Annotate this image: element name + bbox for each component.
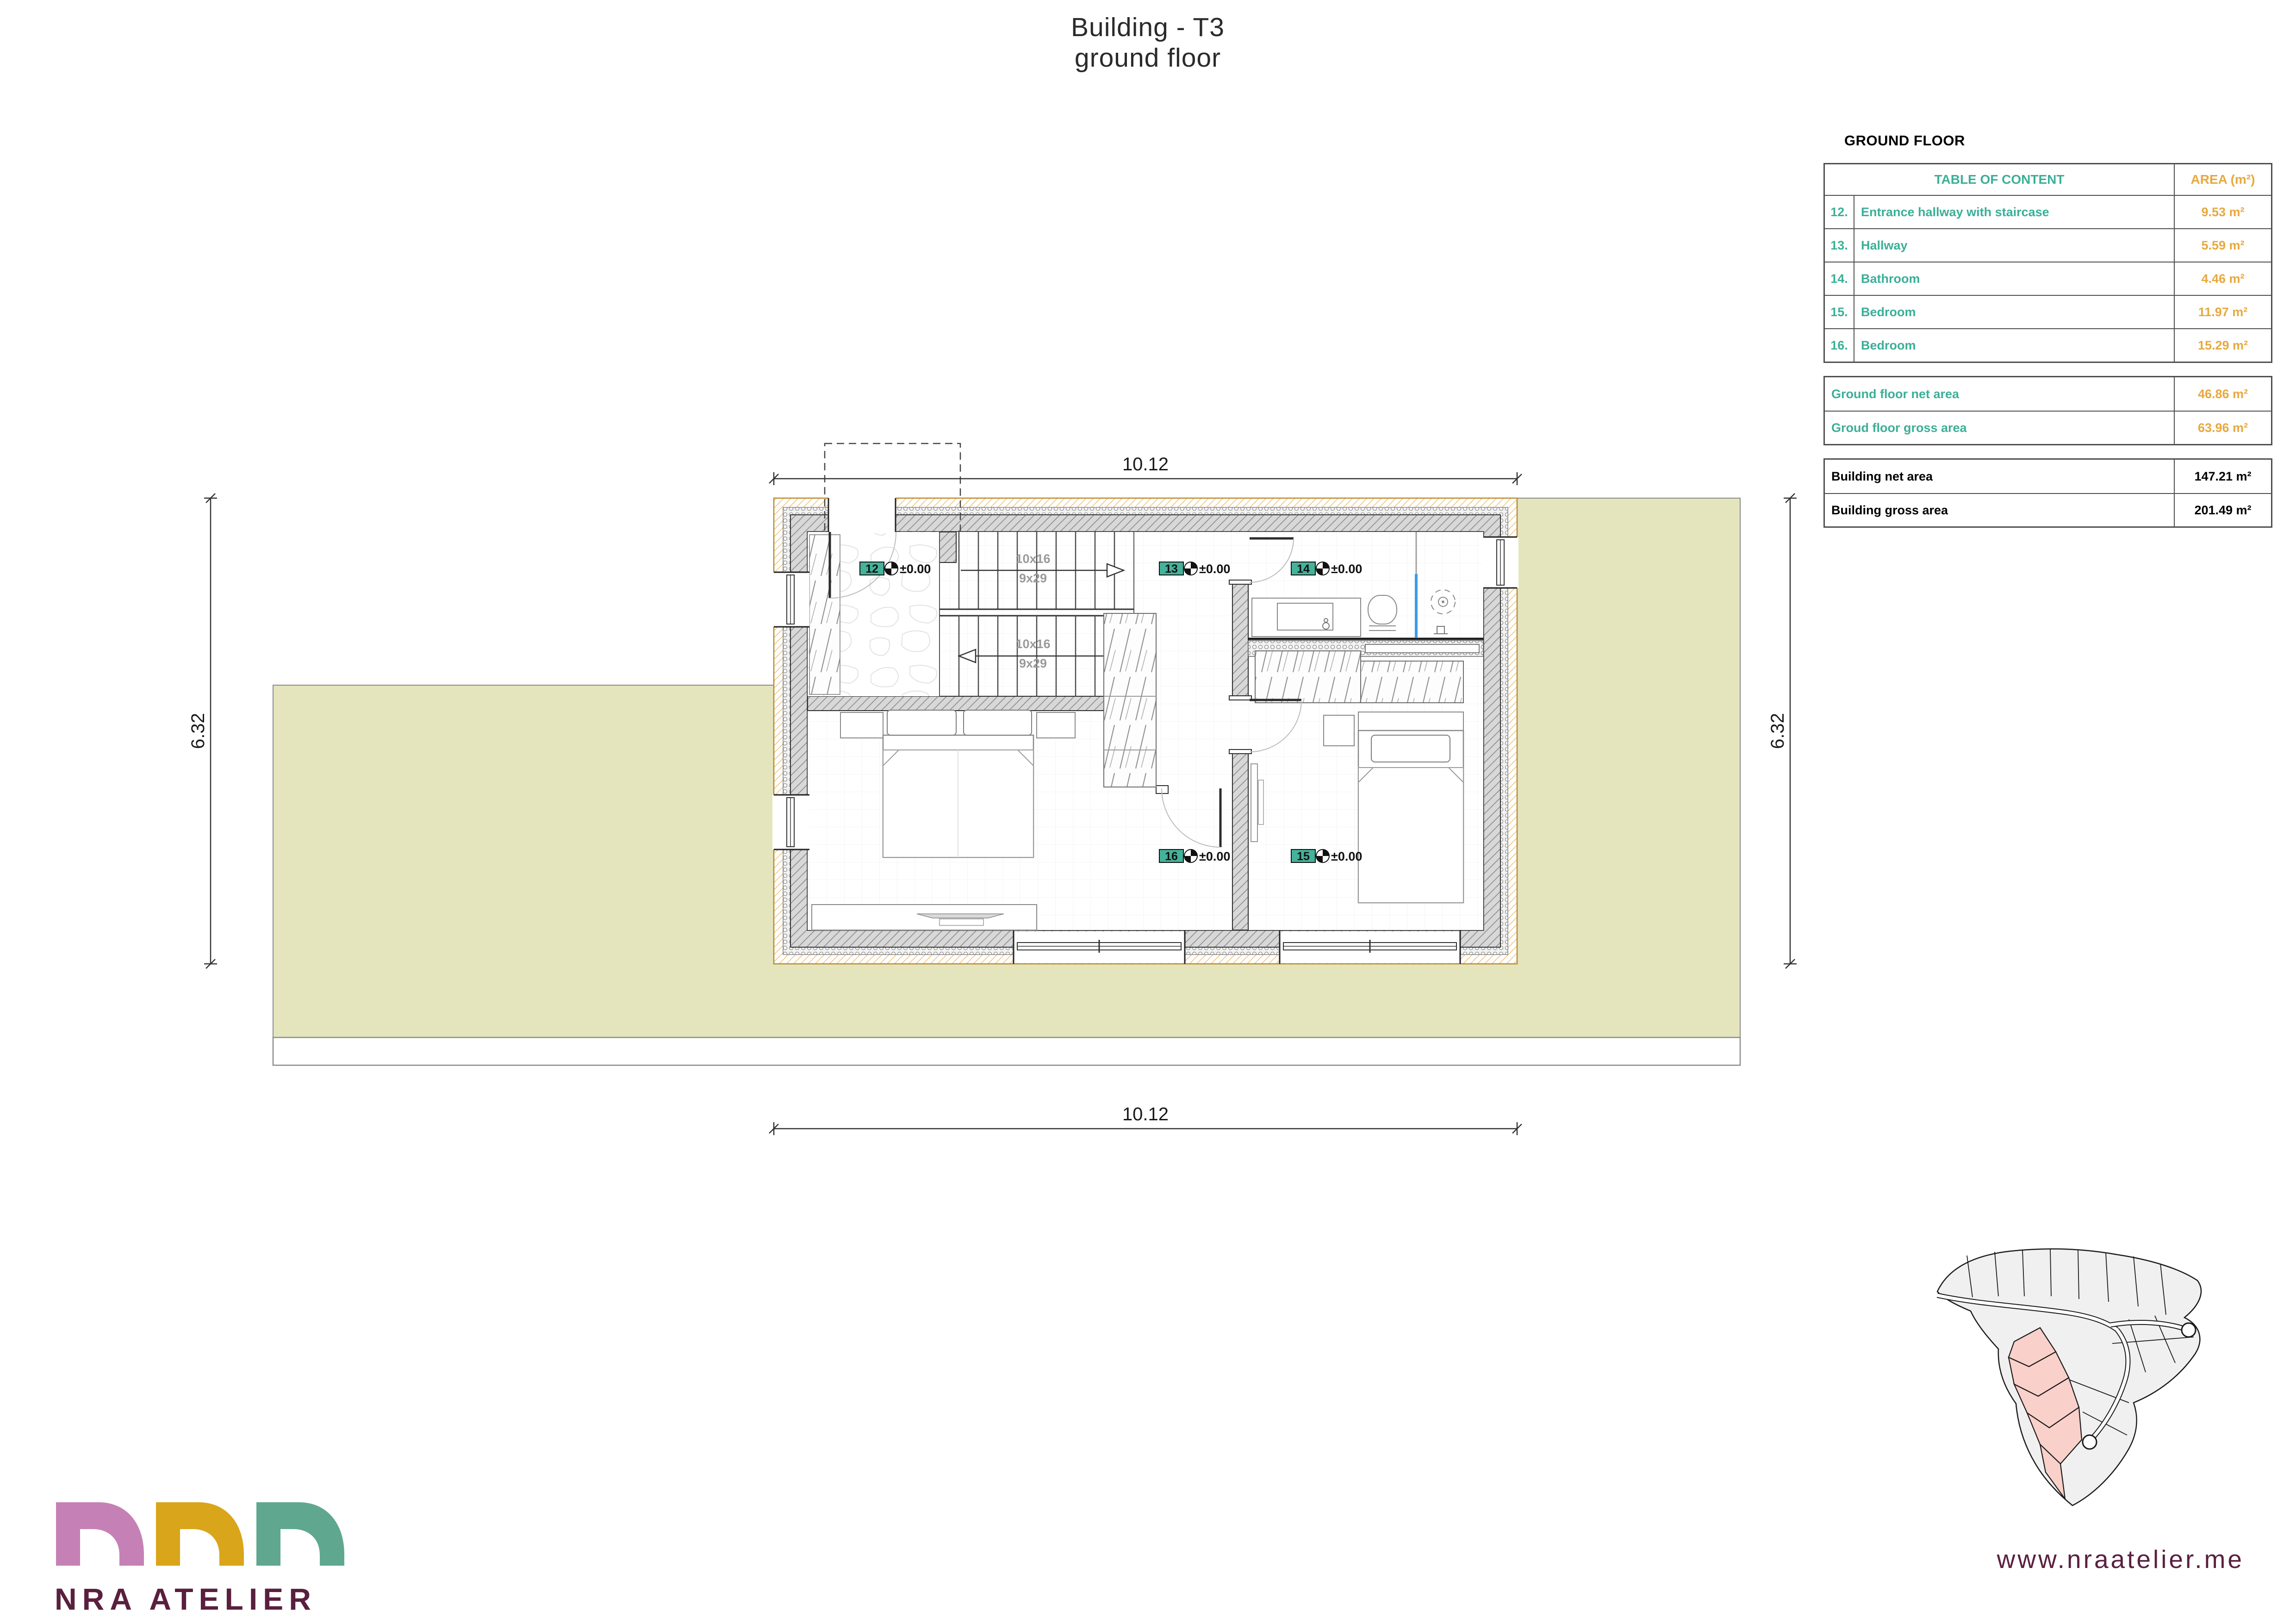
table-row: 14. Bathroom 4.46 m² xyxy=(1825,262,2271,295)
pillow xyxy=(887,710,956,735)
table-of-content: TABLE OF CONTENT AREA (m²) 12. Entrance … xyxy=(1823,163,2272,363)
svg-text:±0.00: ±0.00 xyxy=(1331,849,1362,863)
table-row: 13. Hallway 5.59 m² xyxy=(1825,228,2271,262)
monitor xyxy=(917,914,1004,918)
stair-label-1a: 10x16 xyxy=(1015,552,1050,566)
mirror-panel xyxy=(1251,764,1257,842)
floor-summary-table: Ground floor net area 46.86 m² Groud flo… xyxy=(1823,376,2272,445)
window-right-bathroom xyxy=(1482,537,1518,588)
single-bed xyxy=(1358,712,1463,903)
summary-label: Building gross area xyxy=(1825,494,2174,526)
summary-row: Groud floor gross area 63.96 m² xyxy=(1825,411,2271,444)
row-num: 15. xyxy=(1825,296,1854,328)
summary-row: Building gross area 201.49 m² xyxy=(1825,493,2271,526)
nightstand xyxy=(1037,712,1075,738)
site-map xyxy=(1937,1249,2201,1505)
stair-label-1b: 9x29 xyxy=(1019,571,1047,585)
summary-label: Groud floor gross area xyxy=(1825,412,2174,444)
floor-plan-sheet: { "title": { "line1": "Building - T3", "… xyxy=(0,0,2296,1624)
svg-text:12: 12 xyxy=(865,562,878,575)
dimension-left: 6.32 xyxy=(188,493,217,968)
svg-text:13: 13 xyxy=(1165,562,1178,575)
title-line-1: Building - T3 xyxy=(824,12,1472,43)
dimension-bottom: 10.12 xyxy=(769,1104,1522,1135)
mirror-panel xyxy=(1258,780,1263,824)
summary-label: Ground floor net area xyxy=(1825,377,2174,411)
pillow xyxy=(964,710,1032,735)
window-left-upper xyxy=(772,572,809,627)
stair-label-2a: 10x16 xyxy=(1015,637,1050,651)
pillow xyxy=(1371,735,1450,762)
row-name: Entrance hallway with staircase xyxy=(1854,196,2174,228)
row-area: 5.59 m² xyxy=(2174,229,2271,262)
nightstand xyxy=(840,712,883,738)
dimension-top: 10.12 xyxy=(769,454,1522,485)
row-area: 4.46 m² xyxy=(2174,262,2271,295)
vanity-counter xyxy=(1252,598,1361,637)
svg-text:14: 14 xyxy=(1297,562,1310,575)
svg-text:10.12: 10.12 xyxy=(1122,1104,1169,1124)
area-header: AREA (m²) xyxy=(2174,164,2271,195)
table-row: 12. Entrance hallway with staircase 9.53… xyxy=(1825,195,2271,228)
row-num: 16. xyxy=(1825,329,1854,362)
svg-text:6.32: 6.32 xyxy=(188,713,208,749)
row-name: Bedroom xyxy=(1854,296,2174,328)
row-area: 15.29 m² xyxy=(2174,329,2271,362)
logo-wordmark: NRA ATELIER xyxy=(55,1581,317,1617)
summary-area: 147.21 m² xyxy=(2174,460,2271,493)
entry-closet xyxy=(809,535,840,694)
summary-row: Building net area 147.21 m² xyxy=(1825,460,2271,493)
row-num: 13. xyxy=(1825,229,1854,262)
row-num: 12. xyxy=(1825,196,1854,228)
shower-drain-icon xyxy=(1437,626,1444,634)
keyboard xyxy=(940,919,983,925)
site-path xyxy=(273,1037,1740,1065)
svg-text:16: 16 xyxy=(1165,850,1178,863)
room-tag-15: 15 ±0.00 xyxy=(1291,849,1362,863)
summary-area: 201.49 m² xyxy=(2174,494,2271,526)
svg-text:±0.00: ±0.00 xyxy=(900,562,931,576)
svg-text:±0.00: ±0.00 xyxy=(1199,562,1230,576)
table-row: 16. Bedroom 15.29 m² xyxy=(1825,328,2271,362)
table-row: 15. Bedroom 11.97 m² xyxy=(1825,295,2271,328)
summary-row: Ground floor net area 46.86 m² xyxy=(1825,377,2271,411)
table-header-row: TABLE OF CONTENT AREA (m²) xyxy=(1825,164,2271,195)
window-bottom-bedroom16 xyxy=(1014,930,1185,964)
row-name: Bedroom xyxy=(1854,329,2174,362)
svg-text:15: 15 xyxy=(1297,850,1310,863)
room-tag-13: 13 ±0.00 xyxy=(1159,562,1230,576)
room-tag-16: 16 ±0.00 xyxy=(1159,849,1230,863)
title-line-2: ground floor xyxy=(824,43,1472,73)
dimension-right: 6.32 xyxy=(1767,493,1797,968)
content-header: TABLE OF CONTENT xyxy=(1825,164,2174,195)
summary-label: Building net area xyxy=(1825,460,2174,493)
logo-arches-icon xyxy=(56,1502,344,1566)
row-name: Hallway xyxy=(1854,229,2174,262)
website-url: www.nraatelier.me xyxy=(1997,1544,2244,1574)
nightstand xyxy=(1324,715,1354,746)
window-bottom-bedroom15 xyxy=(1280,930,1460,964)
row-area: 9.53 m² xyxy=(2174,196,2271,228)
svg-text:6.32: 6.32 xyxy=(1767,713,1788,749)
stair-label-2b: 9x29 xyxy=(1019,656,1047,670)
building-summary-table: Building net area 147.21 m² Building gro… xyxy=(1823,458,2272,528)
desk xyxy=(812,905,1037,930)
drawing-title: Building - T3 ground floor xyxy=(824,12,1472,73)
row-name: Bathroom xyxy=(1854,262,2174,295)
room-tag-14: 14 ±0.00 xyxy=(1291,562,1362,576)
summary-area: 46.86 m² xyxy=(2174,377,2271,411)
table-heading: GROUND FLOOR xyxy=(1844,132,1965,149)
summary-area: 63.96 m² xyxy=(2174,412,2271,444)
row-num: 14. xyxy=(1825,262,1854,295)
svg-text:±0.00: ±0.00 xyxy=(1331,562,1362,576)
room-tag-12: 12 ±0.00 xyxy=(860,562,931,576)
svg-text:±0.00: ±0.00 xyxy=(1199,849,1230,863)
svg-text:10.12: 10.12 xyxy=(1122,454,1169,475)
row-area: 11.97 m² xyxy=(2174,296,2271,328)
window-left-lower xyxy=(772,795,809,849)
